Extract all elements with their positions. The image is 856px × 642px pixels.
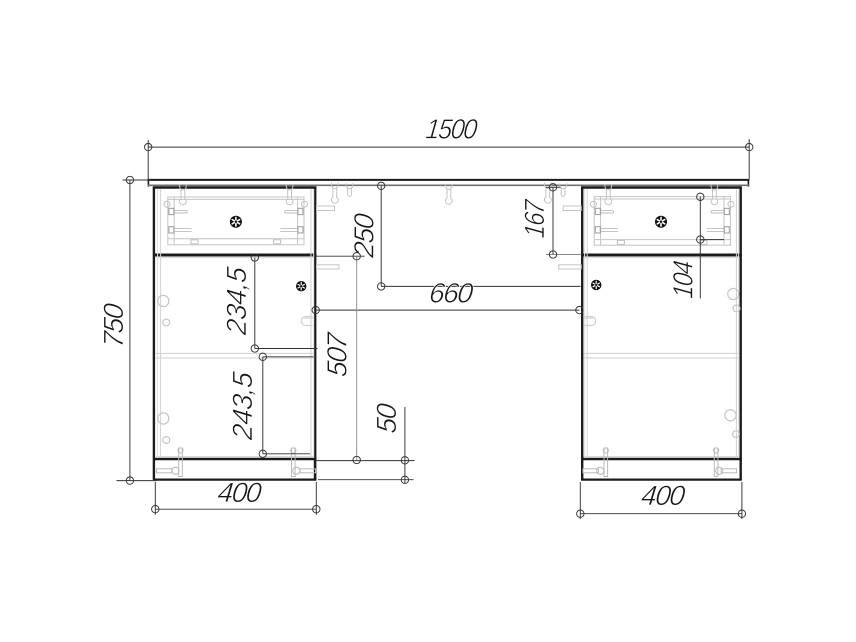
svg-text:400: 400 bbox=[216, 477, 263, 508]
svg-text:50: 50 bbox=[371, 401, 402, 434]
svg-text:243,5: 243,5 bbox=[227, 370, 258, 442]
svg-text:250: 250 bbox=[349, 211, 380, 259]
svg-text:1500: 1500 bbox=[424, 113, 479, 145]
svg-text:750: 750 bbox=[98, 301, 129, 348]
svg-text:660: 660 bbox=[428, 278, 475, 309]
svg-text:507: 507 bbox=[322, 330, 353, 378]
svg-text:234,5: 234,5 bbox=[221, 265, 252, 337]
svg-text:104: 104 bbox=[667, 259, 699, 299]
svg-text:400: 400 bbox=[640, 480, 687, 511]
svg-text:167: 167 bbox=[518, 197, 550, 239]
